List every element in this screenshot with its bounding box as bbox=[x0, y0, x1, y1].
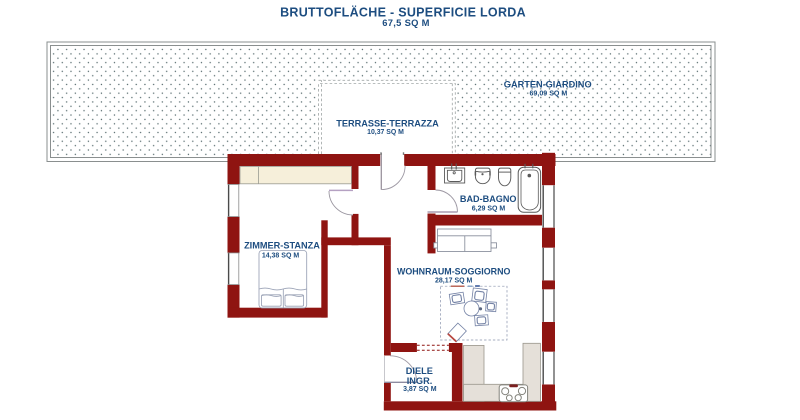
svg-text:GARTEN-GIARDINO: GARTEN-GIARDINO bbox=[504, 80, 592, 90]
svg-text:10,37 SQ M: 10,37 SQ M bbox=[367, 129, 404, 136]
svg-text:6,29 SQ M: 6,29 SQ M bbox=[472, 205, 506, 212]
svg-text:69,09 SQ M: 69,09 SQ M bbox=[529, 89, 567, 97]
svg-text:INGR.: INGR. bbox=[407, 376, 433, 386]
svg-text:TERRASSE-TERRAZZA: TERRASSE-TERRAZZA bbox=[336, 118, 439, 128]
svg-text:DIELE: DIELE bbox=[406, 366, 433, 376]
svg-text:ZIMMER-STANZA: ZIMMER-STANZA bbox=[244, 240, 320, 250]
svg-text:67,5 SQ M: 67,5 SQ M bbox=[382, 17, 430, 28]
svg-text:BAD-BAGNO: BAD-BAGNO bbox=[460, 194, 517, 204]
svg-text:3,87 SQ M: 3,87 SQ M bbox=[403, 386, 437, 393]
svg-text:14,38 SQ M: 14,38 SQ M bbox=[262, 252, 300, 259]
svg-text:WOHNRAUM-SOGGIORNO: WOHNRAUM-SOGGIORNO bbox=[397, 267, 510, 277]
svg-text:28,17 SQ M: 28,17 SQ M bbox=[435, 277, 473, 284]
